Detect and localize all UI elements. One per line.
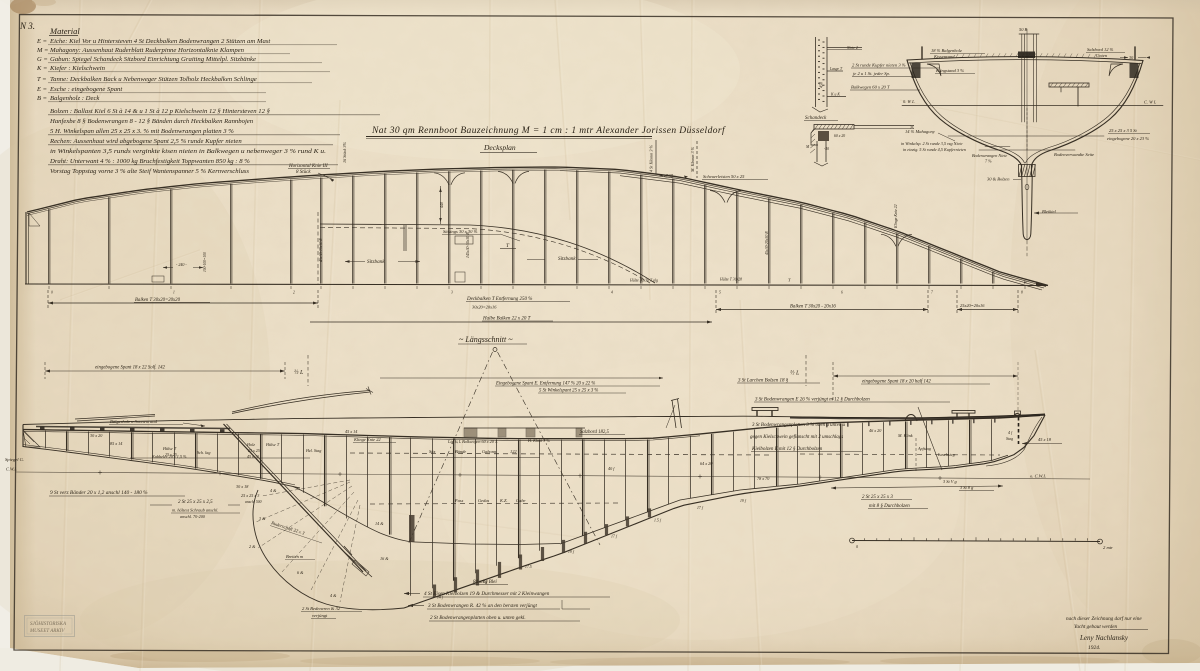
svg-text:Stag: Stag [1006,436,1013,441]
svg-text:19 f: 19 f [568,550,575,554]
svg-text:145x30-30x30 R: 145x30-30x30 R [466,232,470,258]
svg-text:MUSEET ARKIV: MUSEET ARKIV [29,629,65,634]
svg-text:Klinge Knie 22: Klinge Knie 22 [894,204,898,229]
svg-text:Material: Material [49,26,80,36]
svg-text:14 &: 14 & [375,521,384,526]
svg-text:Balkwegen 60 x 20 T: Balkwegen 60 x 20 T [851,85,890,90]
svg-text:Breiten m: Breiten m [286,554,303,559]
svg-text:0: 0 [856,544,858,549]
svg-text:25 x 25: 25 x 25 [248,448,260,453]
svg-text:Klingstand 3 %: Klingstand 3 % [935,68,964,73]
svg-text:Bodenwrangen Niete: Bodenwrangen Niete [972,153,1007,158]
svg-text:Esche : eingebogene Spant: Esche : eingebogene Spant [49,86,122,93]
svg-text:30 x 18: 30 x 18 [236,484,249,489]
svg-text:C.W.L: C.W.L [6,467,17,472]
svg-text:Apfstag: Apfstag [917,446,931,451]
svg-text:Spiegel G.: Spiegel G. [5,457,24,462]
svg-text:Bände: Bände [455,449,466,454]
svg-text:4 St Eisen Kielbolzen 19 &: 4 St Eisen Kielbolzen 19 & Durchmesser m… [424,590,550,597]
svg-text:25 x 25: 25 x 25 [165,452,177,457]
svg-text:anschl. 70-200: anschl. 70-200 [180,514,206,519]
svg-text:45x30-20x30 R: 45x30-20x30 R [765,231,769,255]
svg-text:25 x 25 x 3 5 St: 25 x 25 x 3 5 St [1109,128,1137,133]
svg-text:Gabonn: Gabonn [482,449,497,454]
svg-text:Balgenholz : Deck: Balgenholz : Deck [50,95,100,102]
svg-text:je 2 u 1 St. jeder Sp.: je 2 u 1 St. jeder Sp. [852,71,890,76]
svg-text:7: 7 [931,291,933,295]
svg-text:0. W L: 0. W L [903,99,915,104]
svg-text:1.5 f: 1.5 f [654,519,662,523]
svg-text:45x30-20x30 R: 45x30-20x30 R [319,238,323,262]
svg-text:4: 4 [611,291,613,295]
svg-text:Salzbord 12 %: Salzbord 12 % [1087,47,1114,52]
svg-text:Rechen: Aussenhaut wird ab: Rechen: Aussenhaut wird abgebogene Spant… [49,138,242,145]
svg-text:2 St Bedeneren & 32: 2 St Bedeneren & 32 [302,606,341,611]
svg-text:C. W L: C. W L [1144,100,1157,105]
svg-text:16 &: 16 & [380,556,389,561]
svg-text:Lasge T: Lasge T [829,67,843,71]
svg-text:anschl 500: anschl 500 [245,500,262,504]
svg-text:K =: K = [36,65,47,72]
svg-text:Hülze 30x30 T alg: Hülze 30x30 T alg [629,279,658,283]
svg-text:17.5: 17.5 [525,565,532,569]
svg-text:K.Z.: K.Z. [499,498,508,503]
svg-text:6: 6 [841,291,843,295]
svg-text:6 &: 6 & [297,570,304,575]
svg-text:Gedas: Gedas [478,498,490,503]
svg-text:N 3.: N 3. [19,21,35,31]
svg-text:Yacht gebaut werden: Yacht gebaut werden [1074,624,1118,630]
svg-text:2 St Bodenwrangenplatten ob: 2 St Bodenwrangenplatten oben u. unten g… [430,615,526,621]
svg-text:8: 8 [1021,291,1023,295]
svg-text:SJÖHISTORISKA: SJÖHISTORISKA [30,621,67,627]
svg-text:Decksplan: Decksplan [483,143,516,152]
svg-text:Nat 30 qm Rennboot Bauzeic: Nat 30 qm Rennboot Bauzeichnung M = 1 cm… [371,125,726,136]
svg-text:Holz: Holz [246,442,255,447]
svg-text:Sitz: Sitz [429,449,436,454]
svg-text:25 x 25 x 3: 25 x 25 x 3 [241,493,259,498]
svg-text:Hülse T: Hülse T [162,446,177,451]
svg-text:~ Längsschnitt ~: ~ Längsschnitt ~ [459,335,513,344]
svg-text:45 x 18: 45 x 18 [1038,437,1052,442]
svg-text:E =: E = [36,86,47,93]
svg-text:18 % Balgenholz: 18 % Balgenholz [931,48,962,53]
svg-text:2: 2 [293,291,295,295]
svg-text:17 f: 17 f [481,580,488,584]
svg-text:2 mtr: 2 mtr [1103,545,1113,550]
svg-text:50 B: 50 B [1019,27,1027,32]
svg-text:Lip ¾ L Balkwegen 60 x 20 T: Lip ¾ L Balkwegen 60 x 20 T. [447,439,498,444]
svg-text:4 &: 4 & [330,593,337,598]
svg-text:Leny Nachlansky: Leny Nachlansky [1079,634,1129,642]
svg-text:Eingebogene Spant E. Entfernu: Eingebogene Spant E. Entfernung 147 % 20… [495,382,595,387]
svg-text:78 x 70: 78 x 70 [757,476,770,481]
svg-text:Hanfexbe 8 § Bodenwrangen 8: Hanfexbe 8 § Bodenwrangen 8 - 12 § Bände… [49,118,254,125]
svg-text:122: 122 [510,449,517,454]
svg-text:K u K: K u K [830,93,840,97]
svg-text:2 St runde Kupfer nieten 3 %: 2 St runde Kupfer nieten 3 % [852,63,906,68]
svg-text:30x20=20x16: 30x20=20x16 [472,305,497,310]
svg-text:5 H. Winkelspan allen 25 x 2: 5 H. Winkelspan allen 25 x 25 x 3. % mit… [50,128,234,135]
svg-text:Scheuerleisten 50 x 25: Scheuerleisten 50 x 25 [703,174,745,179]
svg-text:eingebogene Spant 18 x 22 So: eingebogene Spant 18 x 22 Solf. 142 [95,366,166,371]
svg-text:2 St 25 x 25 x 2,5: 2 St 25 x 25 x 2,5 [178,500,213,505]
svg-text:Kissenrand: Kissenrand [933,54,955,59]
svg-text:17 f: 17 f [611,534,618,538]
svg-text:Niete 2: Niete 2 [846,46,858,50]
svg-text:3 St Bodenwrangenplatten 3 %: 3 St Bodenwrangenplatten 3 % oben u unte… [752,423,846,428]
svg-text:M =: M = [36,47,48,54]
svg-text:M. Klink: M. Klink [897,433,913,438]
svg-text:0: 0 [51,291,53,295]
svg-text:3 &: 3 & [259,516,266,521]
svg-text:9 St verz Bänder 20 x 1,2: 9 St verz Bänder 20 x 1,2 anschl 140 - 1… [50,490,148,496]
svg-text:Gabe: Gabe [516,498,526,503]
svg-text:G =: G = [37,56,48,63]
svg-text:85 x 14: 85 x 14 [110,441,122,446]
svg-text:5: 5 [719,291,721,295]
svg-text:Kiefer : Kielschwein: Kiefer : Kielschwein [49,65,106,72]
svg-text:7 %: 7 % [985,159,992,164]
svg-text:Tanne: Deckbalken Back u Neb: Tanne: Deckbalken Back u Nebenweger Stüt… [50,76,257,83]
svg-text:B =: B = [37,95,47,102]
svg-text:Sitzbank: Sitzbank [558,256,576,262]
svg-text:8 Stück: 8 Stück [296,170,311,175]
svg-text:64 x 20: 64 x 20 [700,461,713,466]
svg-text:eingebogene 20 x 23 %: eingebogene 20 x 23 % [1107,136,1149,141]
svg-text:3 St Bodenwrangen R. 42 %: 3 St Bodenwrangen R. 42 % an den bersten… [428,602,537,609]
svg-text:½ L: ½ L [790,370,800,377]
svg-text:Gabun: Spiegel Schandeck Sit: Gabun: Spiegel Schandeck Sitzbord Einric… [50,56,256,63]
svg-text:Bolzen : Ballast Kiel 6 St à: Bolzen : Ballast Kiel 6 St à 14 & u 1 St… [50,108,271,115]
svg-text:14 f: 14 f [437,596,444,600]
svg-text:440: 440 [439,202,444,208]
svg-text:Sitzbank: Sitzbank [367,259,385,265]
svg-text:2 &: 2 & [249,544,256,549]
svg-text:eingebogene Spant 18 x 20 ha: eingebogene Spant 18 x 20 half 142 [862,380,931,385]
svg-text:25x20=20x16: 25x20=20x16 [960,303,985,308]
svg-text:Hülse T: Hülse T [265,442,280,447]
svg-text:46 x 20: 46 x 20 [869,428,882,433]
svg-text:in Winkelspanten 3,5 runds v: in Winkelspanten 3,5 runds verginkte kis… [50,148,326,155]
svg-text:Vorstag Toppstag vorne 3 %: Vorstag Toppstag vorne 3 % alte Steif Wa… [50,168,249,175]
svg-text:Laschsteg: Laschsteg [937,452,955,457]
svg-text:19 f: 19 f [740,499,747,503]
svg-text:M. Klemm 3 %: M. Klemm 3 % [690,146,695,173]
svg-text:100-100=100: 100-100=100 [203,252,207,272]
svg-text:Fass: Fass [454,498,464,503]
svg-text:Hülze T 30x28: Hülze T 30x28 [719,278,742,282]
svg-text:30 & Bolzen: 30 & Bolzen [987,177,1010,182]
svg-text:17 f: 17 f [697,506,704,510]
svg-text:14 % Mahagony: 14 % Mahagony [905,129,935,134]
svg-text:Bodenverwandte Seite: Bodenverwandte Seite [1054,152,1094,157]
svg-text:m. hältest Schraub anschl.: m. hältest Schraub anschl. [172,508,218,513]
svg-text:Sätlings 30 x 30 %: Sätlings 30 x 30 % [443,229,478,234]
svg-text:Sch. lag: Sch. lag [197,450,211,455]
svg-text:Hzl. Stag: Hzl. Stag [305,448,321,453]
svg-text:3: 3 [451,291,453,295]
svg-text:16 Stück 3%: 16 Stück 3% [342,142,347,163]
svg-text:T =: T = [37,76,47,83]
svg-text:40 f: 40 f [608,466,615,471]
svg-text:4 &: 4 & [270,488,277,493]
svg-text:3 St 8 g: 3 St 8 g [960,485,974,490]
svg-text:450: 450 [819,82,824,88]
svg-text:o. C.W.L: o. C.W.L [1030,474,1046,479]
svg-text:-30: -30 [824,147,829,151]
svg-text:3 St V g: 3 St V g [943,479,958,484]
svg-text:45 x 14: 45 x 14 [345,429,357,434]
svg-text:verjüngt: verjüngt [312,613,328,618]
svg-text:nach dieser Zeichnung darf nur: nach dieser Zeichnung darf nur eine [1066,615,1142,622]
svg-text:- 240 -: - 240 - [176,262,187,267]
svg-text:5 St Winkelspant 25 x 25 x 3: 5 St Winkelspant 25 x 25 x 3 % [539,389,598,394]
svg-text:Eiche: Kiel Vor u Hintersteve: Eiche: Kiel Vor u Hintersteven 4 St Deck… [49,38,270,45]
svg-text:45 x 20: 45 x 20 [247,454,259,459]
svg-text:Unten: Unten [1096,53,1108,58]
svg-text:Balken T 30x20 - 20x16: Balken T 30x20 - 20x16 [790,305,836,310]
svg-text:1: 1 [173,291,175,295]
svg-text:½ L: ½ L [294,369,304,376]
svg-text:gegen Kielschwein geflanscht: gegen Kielschwein geflanscht mit 2 umsch… [750,435,843,440]
svg-text:Bälgerholz u Sonnenrand: Bälgerholz u Sonnenrand [110,419,158,424]
svg-text:Draht: Unterwant 4 % : 1000: Draht: Unterwant 4 % : 1000 kg Bruchfest… [49,158,250,165]
svg-text:H. Klink 3 %: H. Klink 3 % [527,438,550,443]
svg-text:4 St Klemm 3 %: 4 St Klemm 3 % [649,145,654,172]
svg-text:Mahagony: Aussenhaut Ruderbla: Mahagony: Aussenhaut Ruderblatt Ruderpin… [49,47,245,54]
svg-text:Klinge Knie 22: Klinge Knie 22 [353,437,381,442]
svg-text:60 x 20: 60 x 20 [834,134,845,138]
svg-text:1924.: 1924. [1088,644,1100,651]
svg-text:E =: E = [36,38,47,45]
svg-text:30 x 20: 30 x 20 [90,433,103,438]
